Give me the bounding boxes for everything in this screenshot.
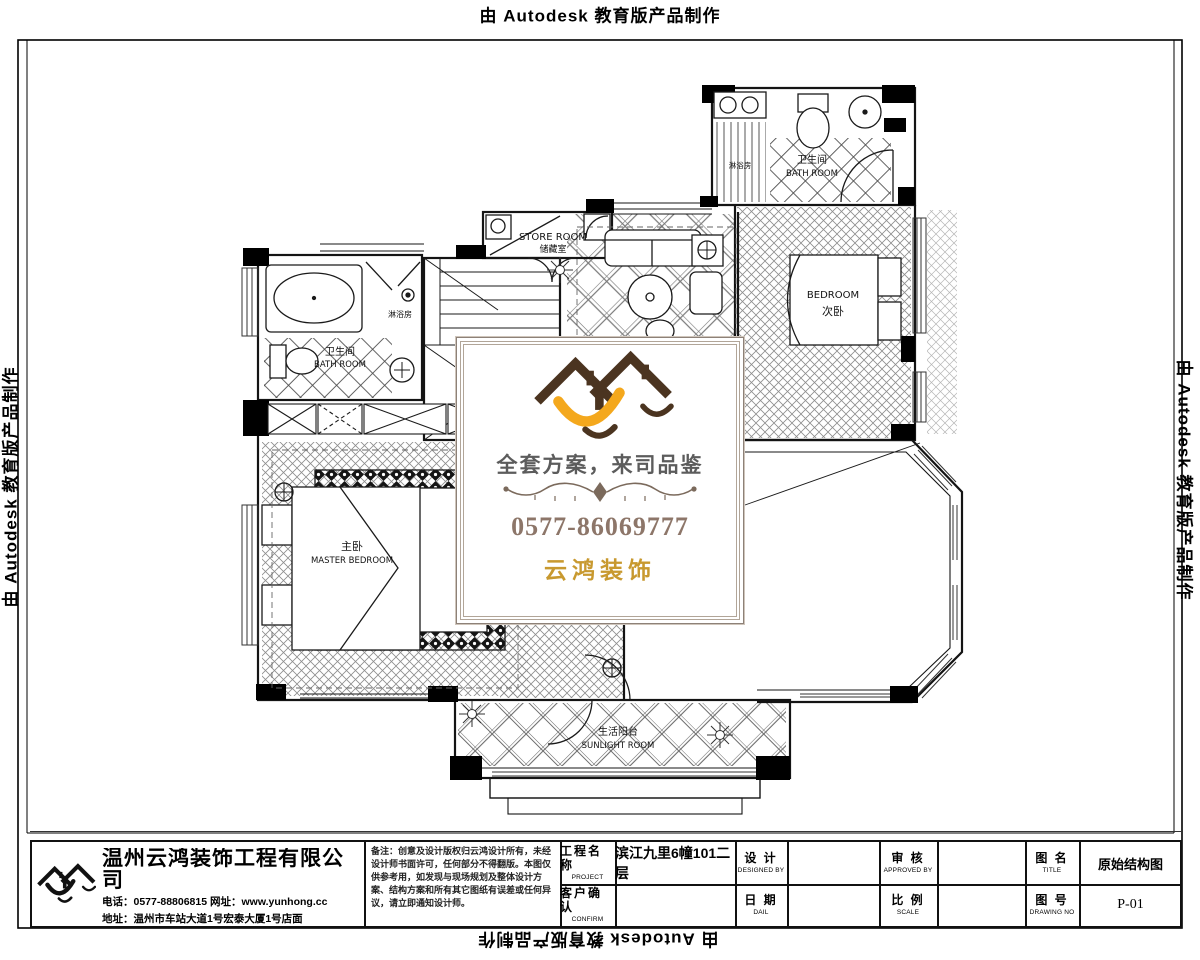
- master-label-zh: 主卧: [341, 540, 363, 553]
- company-watermark-card: 全套方案，来司品鉴 0577-86069777 云鸿装饰: [456, 337, 744, 624]
- nightstand: [262, 505, 292, 545]
- bath2-label-en: BATH ROOM: [786, 169, 838, 179]
- toilet-top: [797, 108, 829, 148]
- confirm-label: 客户确认 CONFIRM: [560, 884, 615, 926]
- company-name: 温州云鸿装饰工程有限公司: [102, 848, 360, 892]
- store-room-label-zh: 储藏室: [539, 243, 566, 255]
- notes-text: 备注：创意及设计版权归云鸿设计所有，未经设计师书面许可，任何部分不得翻版。本图仅…: [366, 842, 559, 913]
- title-label: 图 名 TITLE: [1025, 842, 1079, 884]
- shower2-label: 淋浴房: [729, 160, 752, 170]
- sunroom-label-zh: 生活阳台: [598, 725, 638, 738]
- bath1-label-en: BATH ROOM: [314, 360, 366, 370]
- design-value: [787, 842, 879, 884]
- drawingno-label: 图 号 DRAWING NO: [1025, 884, 1079, 926]
- watermark-slogan: 全套方案，来司品鉴: [497, 449, 704, 479]
- store-room-label-en: STORE ROOM: [519, 232, 587, 243]
- nightstand: [262, 585, 292, 625]
- watermark-brand: 云鸿装饰: [544, 551, 656, 585]
- bath2-label-zh: 卫生间: [797, 153, 827, 166]
- sofa: [605, 230, 701, 266]
- round-table: [628, 275, 672, 319]
- project-label: 工程名称 PROJECT: [560, 842, 615, 884]
- frame-divider-line: [30, 831, 1182, 832]
- company-contact: 电话：0577-88806815 网址：www.yunhong.cc: [102, 894, 360, 909]
- date-value: [787, 884, 879, 926]
- design-label: 设 计 DESIGNED BY: [735, 842, 787, 884]
- flourish-divider: [495, 479, 705, 505]
- title-block: 温州云鸿装饰工程有限公司 电话：0577-88806815 网址：www.yun…: [30, 840, 1182, 928]
- shower1-label: 淋浴房: [388, 309, 412, 319]
- toilet-tank-left: [270, 345, 286, 378]
- pillow: [878, 302, 901, 340]
- project-value: 滨江九里6幢101二层: [615, 842, 735, 884]
- approve-label: 审 核 APPROVED BY: [879, 842, 937, 884]
- scale-value: [937, 884, 1025, 926]
- company-info: 温州云鸿装饰工程有限公司 电话：0577-88806815 网址：www.yun…: [102, 848, 360, 924]
- bath1-label-zh: 卫生间: [325, 345, 355, 358]
- title-value: 原始结构图: [1079, 842, 1182, 884]
- titleblock-logo: [34, 848, 98, 922]
- chaise: [690, 272, 722, 314]
- sunroom-label-en: SUNLIGHT ROOM: [582, 741, 655, 751]
- scale-label: 比 例 SCALE: [879, 884, 937, 926]
- bedroom2-label-zh: 次卧: [822, 304, 844, 318]
- bedroom2-label-en: BEDROOM: [807, 290, 859, 301]
- pillow: [878, 258, 901, 296]
- approve-value: [937, 842, 1025, 884]
- yunhong-logo-icon: [525, 345, 675, 443]
- bed-master: [292, 487, 420, 650]
- drawingno-value: P-01: [1079, 884, 1182, 926]
- watermark-phone: 0577-86069777: [511, 512, 689, 542]
- confirm-value: [615, 884, 735, 926]
- drawing-sheet: 由 Autodesk 教育版产品制作 由 Autodesk 教育版产品制作 由 …: [0, 0, 1200, 960]
- master-label-en: MASTER BEDROOM: [311, 556, 393, 566]
- notes-cell: 备注：创意及设计版权归云鸿设计所有，未经设计师书面许可，任何部分不得翻版。本图仅…: [366, 842, 559, 926]
- company-address: 地址：温州市车站大道1号宏泰大厦1号店面: [102, 911, 360, 924]
- date-label: 日 期 DAIL: [735, 884, 787, 926]
